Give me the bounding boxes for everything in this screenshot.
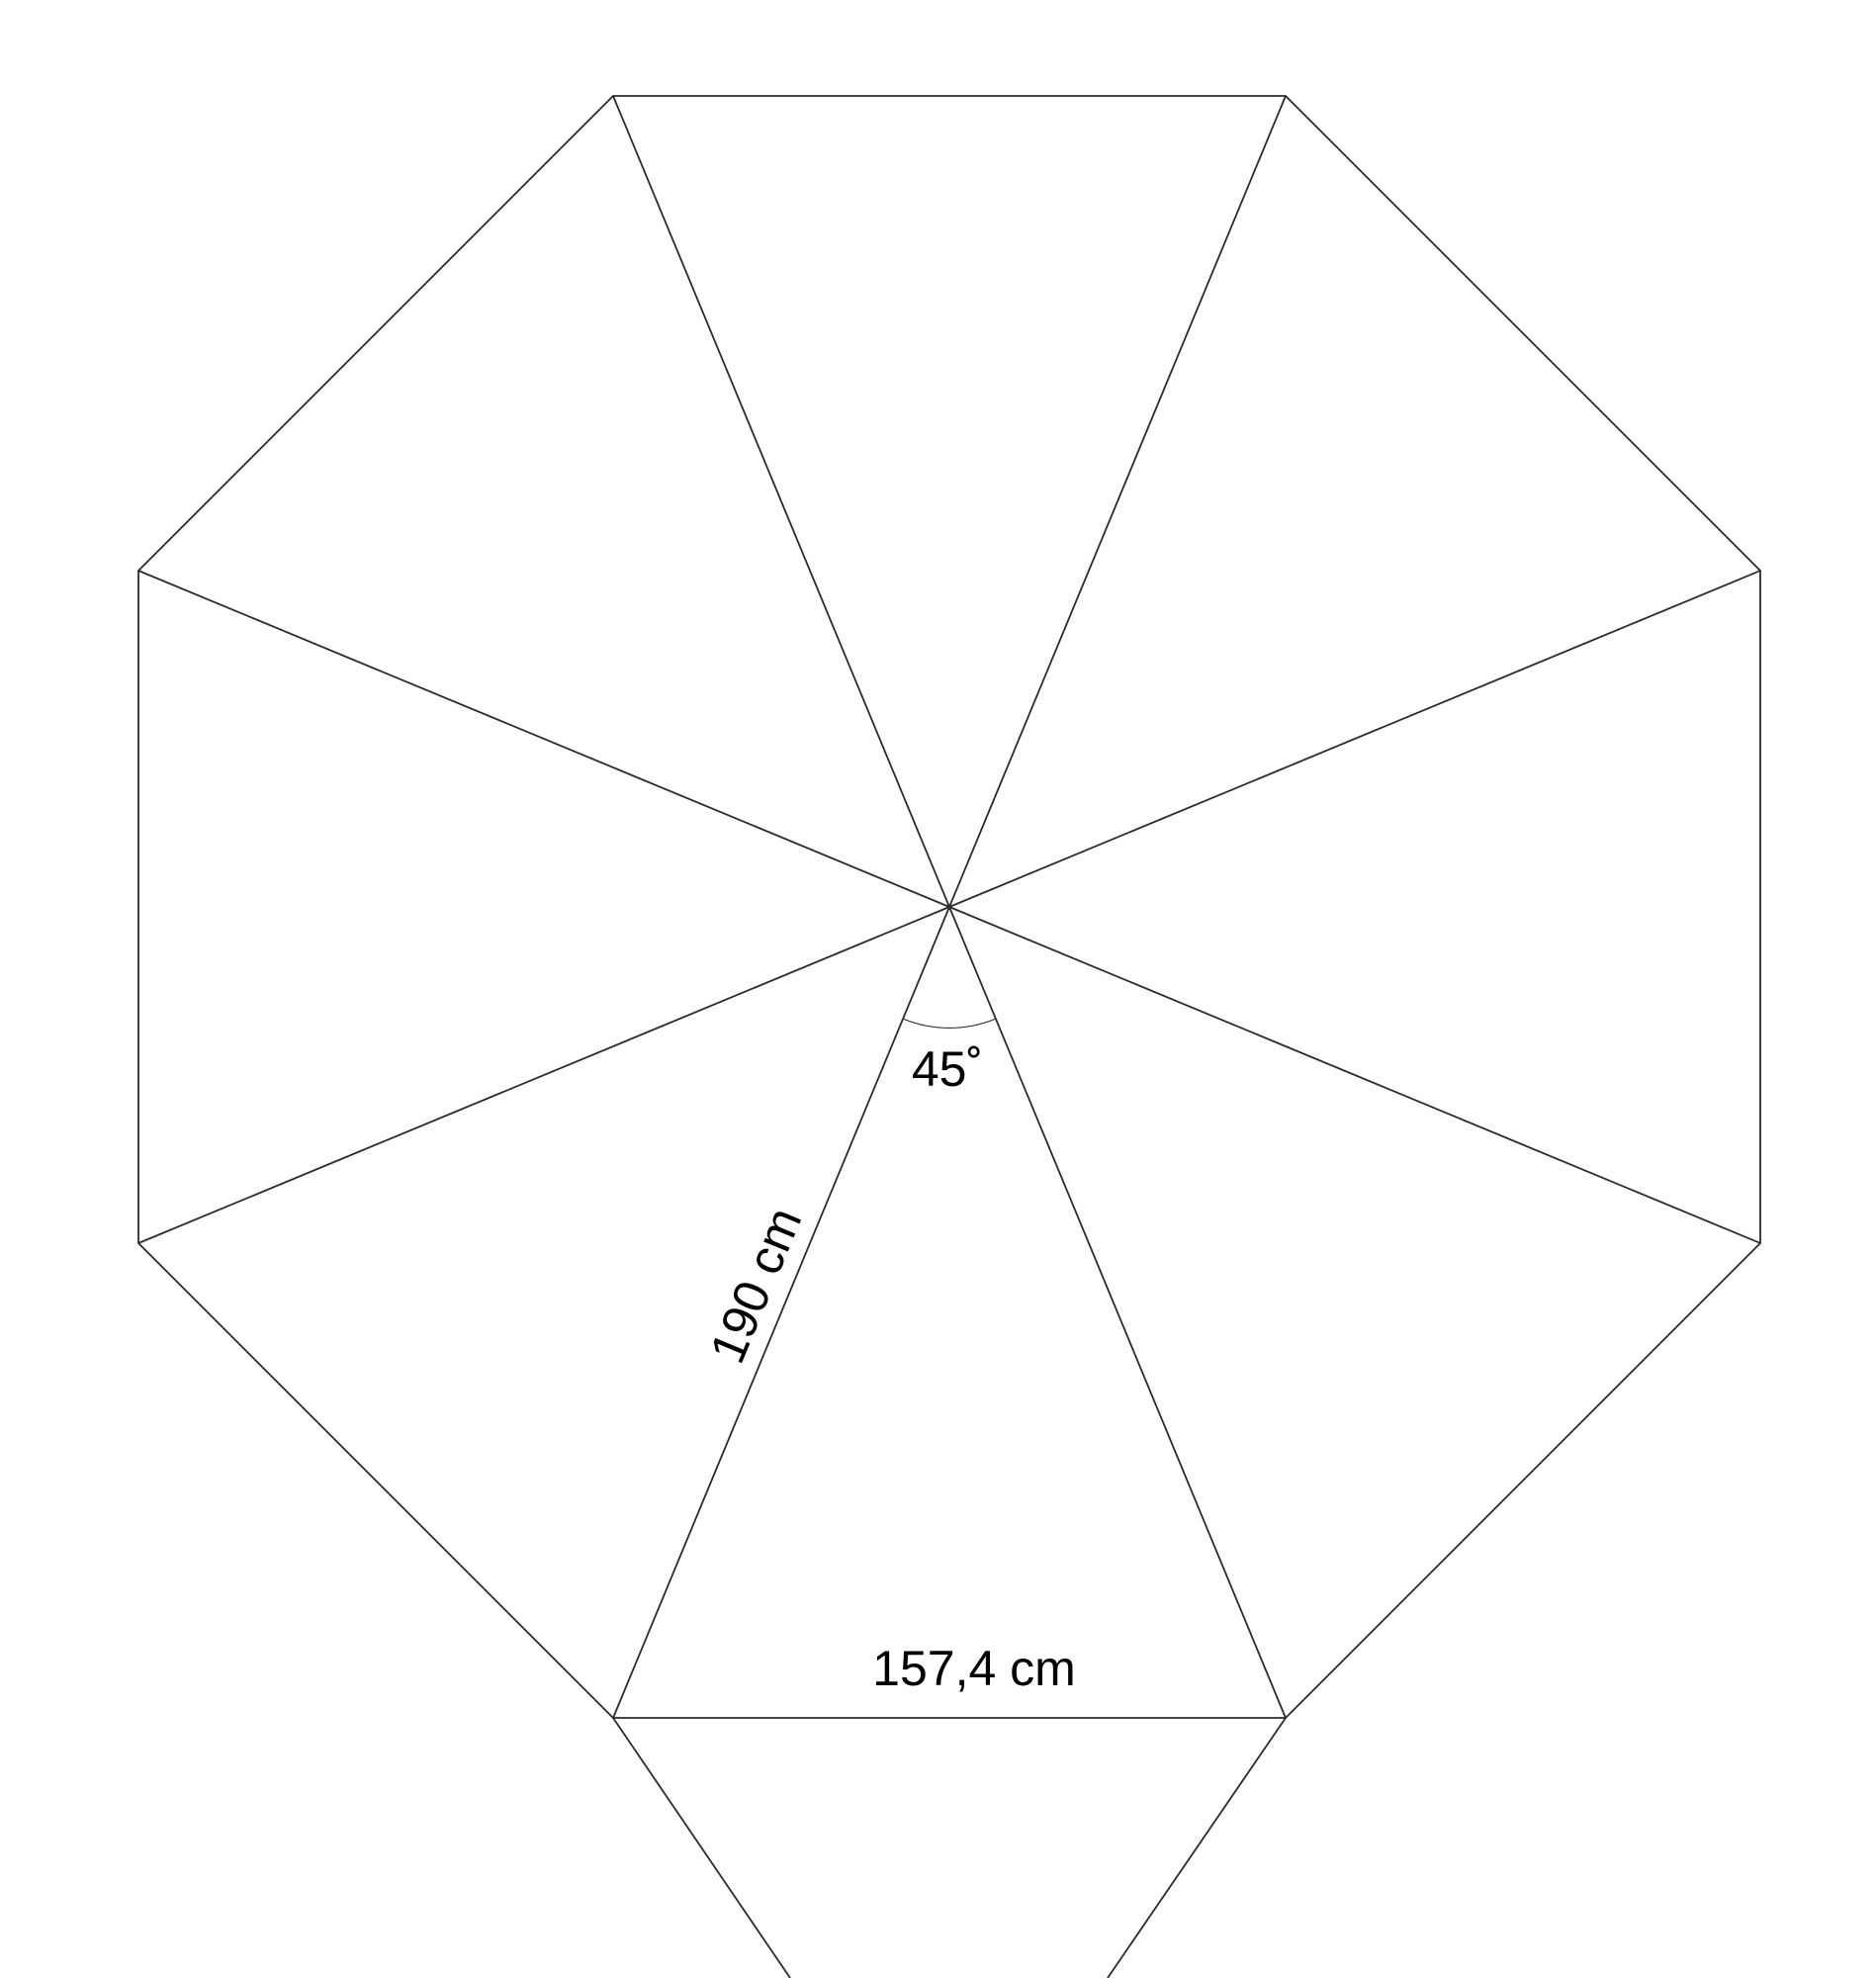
radial-seam-lines: [138, 96, 1760, 1718]
gore-side-length-label: 190 cm: [699, 1200, 812, 1371]
gore-base-length-label: 157,4 cm: [872, 1641, 1076, 1696]
umbrella-pattern-figure: 45˚ 190 cm 157,4 cm: [0, 0, 1876, 1978]
diagram-canvas: 45˚ 190 cm 157,4 cm: [0, 0, 1876, 1978]
apex-angle-label: 45˚: [912, 1041, 983, 1097]
flap-lines: [613, 1718, 1286, 1978]
angle-arc: [903, 1019, 996, 1028]
